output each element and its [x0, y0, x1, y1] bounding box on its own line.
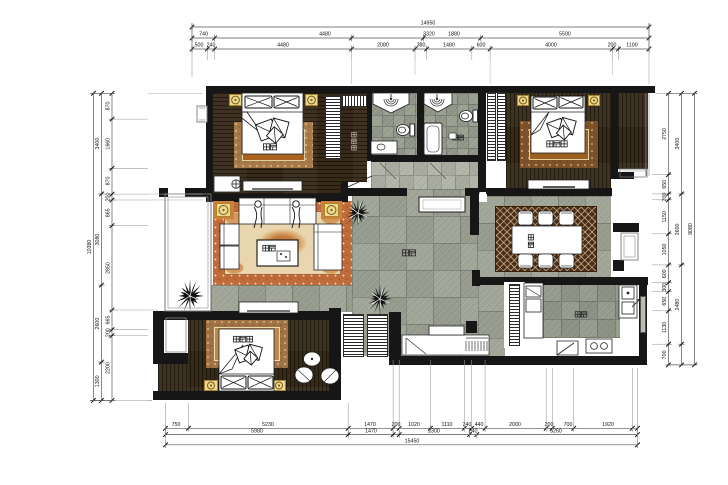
svg-text:3320: 3320 [423, 32, 435, 38]
svg-text:600: 600 [662, 269, 668, 278]
svg-text:740: 740 [199, 32, 208, 38]
svg-text:1110: 1110 [442, 422, 453, 428]
svg-text:1150: 1150 [662, 211, 668, 222]
svg-text:1100: 1100 [626, 43, 637, 49]
svg-text:1020: 1020 [408, 422, 420, 428]
svg-text:5980: 5980 [251, 428, 263, 434]
svg-text:1050: 1050 [662, 243, 668, 255]
svg-text:5260: 5260 [550, 428, 562, 434]
svg-text:3400: 3400 [675, 138, 681, 150]
svg-text:700: 700 [662, 350, 668, 359]
svg-text:650: 650 [662, 297, 668, 306]
svg-text:1300: 1300 [95, 375, 101, 387]
svg-text:1880: 1880 [448, 32, 460, 38]
svg-text:2200: 2200 [106, 362, 112, 374]
svg-text:2750: 2750 [662, 128, 668, 140]
svg-text:750: 750 [172, 422, 181, 428]
svg-text:4480: 4480 [319, 32, 331, 38]
svg-text:4000: 4000 [545, 43, 557, 49]
svg-text:14950: 14950 [421, 21, 436, 27]
svg-text:2600: 2600 [95, 318, 101, 330]
svg-text:2080: 2080 [377, 43, 389, 49]
svg-text:700: 700 [564, 422, 573, 428]
svg-text:440: 440 [475, 422, 484, 428]
svg-text:1480: 1480 [443, 43, 455, 49]
svg-text:10380: 10380 [87, 240, 93, 255]
svg-text:300: 300 [662, 283, 668, 292]
svg-text:5230: 5230 [262, 422, 274, 428]
svg-text:240: 240 [469, 428, 478, 434]
svg-text:1660: 1660 [106, 138, 112, 150]
svg-text:1470: 1470 [364, 422, 376, 428]
svg-text:200: 200 [106, 328, 112, 337]
svg-text:500: 500 [195, 43, 204, 49]
svg-text:240: 240 [463, 422, 472, 428]
svg-text:5500: 5500 [559, 32, 571, 38]
svg-text:4480: 4480 [277, 43, 289, 49]
svg-text:2480: 2480 [675, 299, 681, 311]
svg-text:200: 200 [608, 43, 617, 49]
svg-text:9080: 9080 [688, 223, 694, 235]
svg-text:870: 870 [106, 102, 112, 111]
svg-text:600: 600 [477, 43, 486, 49]
svg-text:865: 865 [106, 208, 112, 217]
svg-text:200: 200 [106, 193, 112, 202]
svg-text:1920: 1920 [602, 422, 614, 428]
svg-text:665: 665 [106, 316, 112, 325]
svg-text:2600: 2600 [675, 223, 681, 235]
svg-text:1470: 1470 [365, 428, 377, 434]
svg-text:15450: 15450 [405, 439, 420, 445]
svg-text:380: 380 [417, 43, 426, 49]
svg-text:1130: 1130 [662, 322, 668, 333]
svg-text:240: 240 [207, 43, 216, 49]
svg-text:2000: 2000 [509, 422, 521, 428]
svg-text:2850: 2850 [106, 262, 112, 274]
svg-text:3080: 3080 [95, 234, 101, 246]
svg-text:2300: 2300 [428, 428, 440, 434]
svg-text:650: 650 [662, 180, 668, 189]
svg-text:3400: 3400 [95, 138, 101, 150]
svg-text:870: 870 [106, 177, 112, 186]
